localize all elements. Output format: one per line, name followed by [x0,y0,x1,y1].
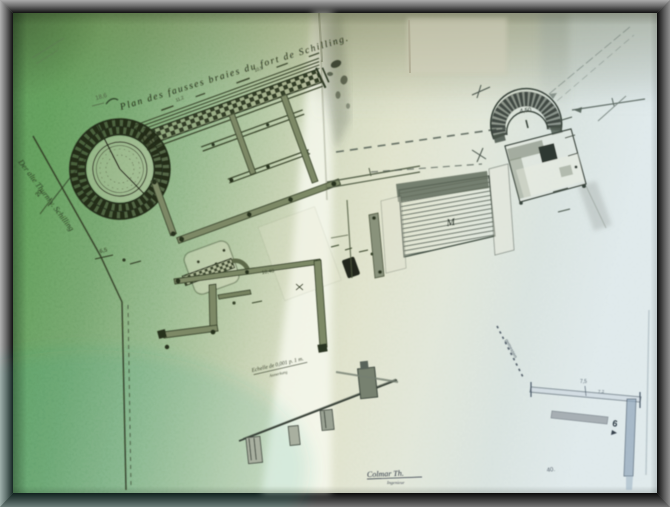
svg-text:7,2: 7,2 [598,389,605,394]
svg-text:40.: 40. [546,467,555,474]
svg-text:Colmar Th.: Colmar Th. [367,469,404,479]
svg-text:Ingenieur: Ingenieur [386,480,405,485]
svg-text:7,5: 7,5 [580,379,587,385]
